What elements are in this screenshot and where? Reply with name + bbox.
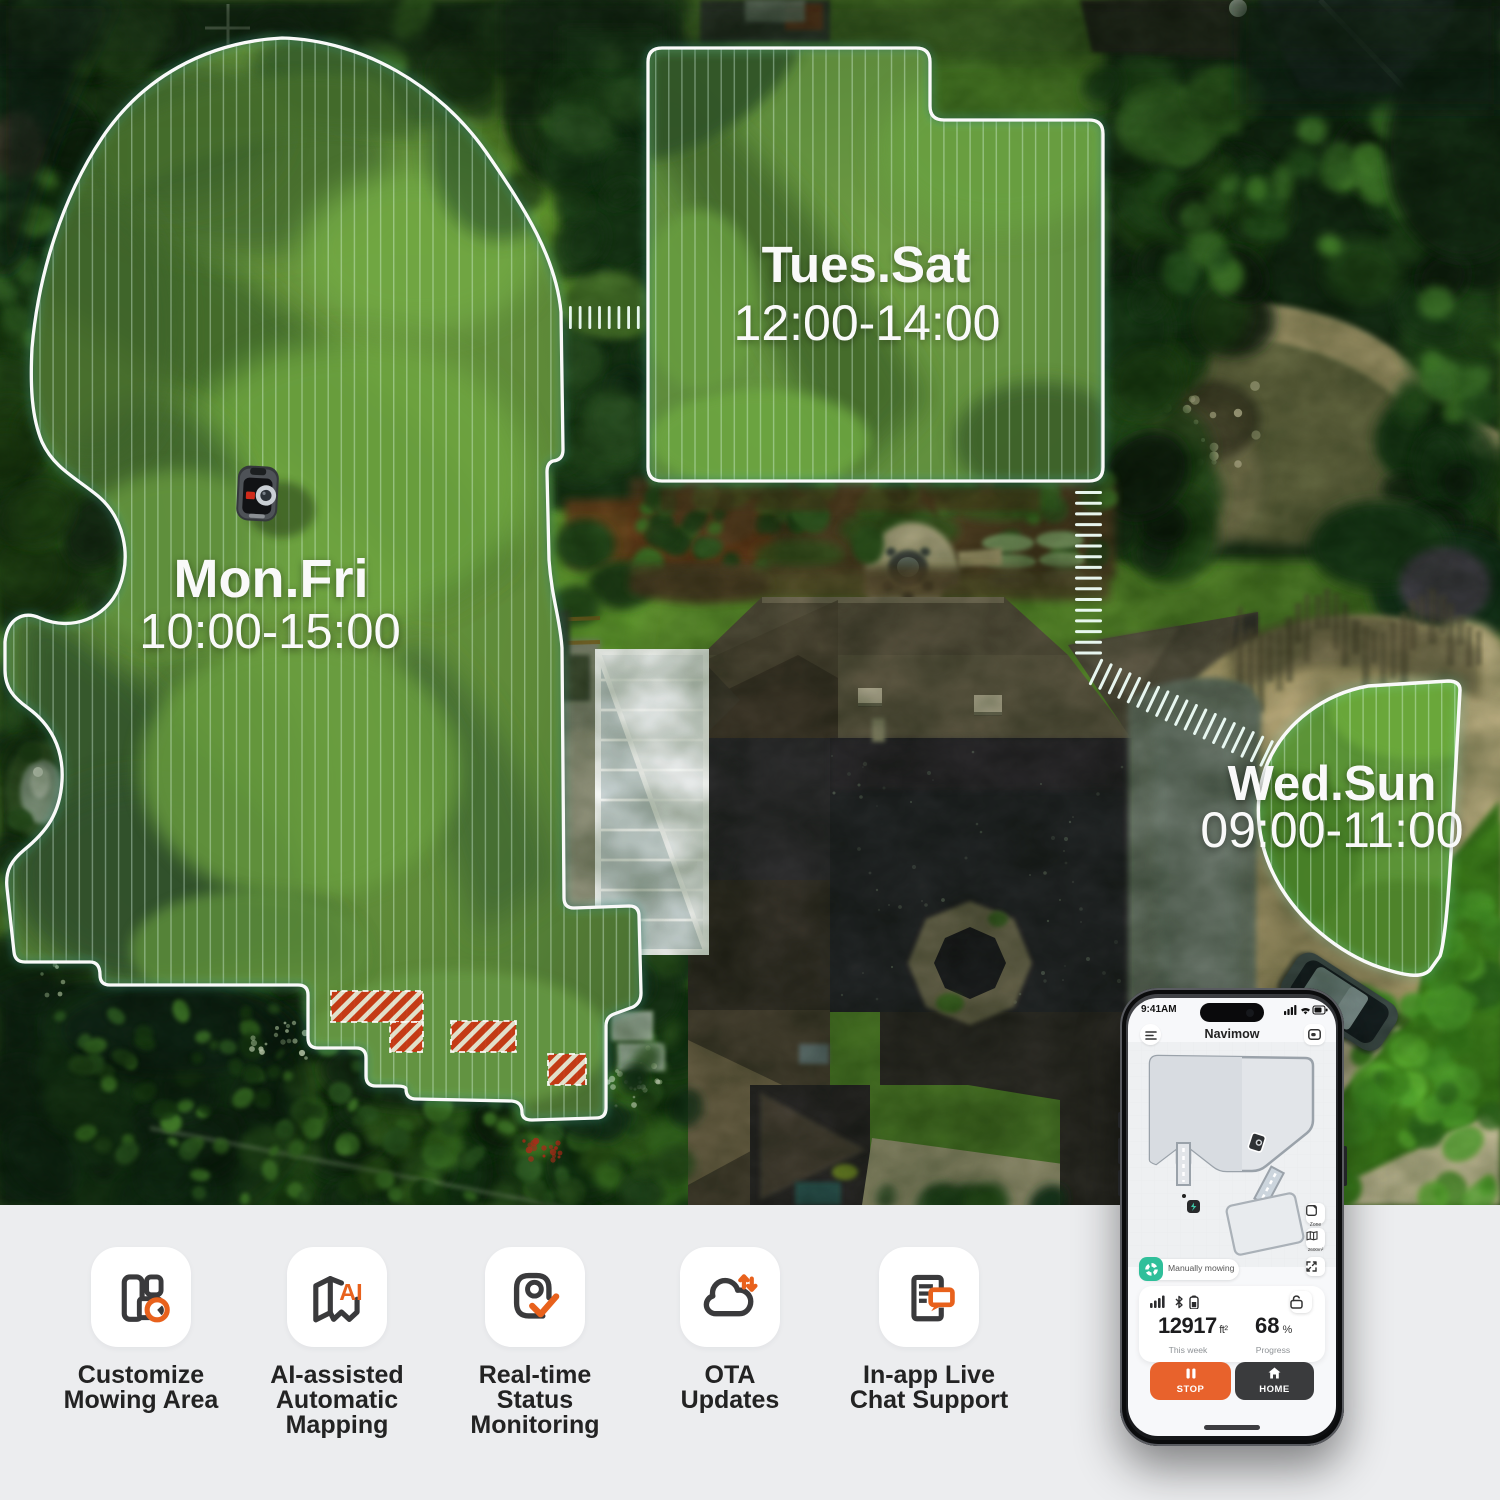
svg-text:12:00-14:00: 12:00-14:00 <box>734 295 1001 351</box>
svg-text:Mon.Fri: Mon.Fri <box>174 549 369 609</box>
svg-text:AI: AI <box>339 1279 362 1305</box>
svg-text:10:00-15:00: 10:00-15:00 <box>139 605 401 659</box>
svg-text:Tues.Sat: Tues.Sat <box>762 236 971 293</box>
svg-text:09:00-11:00: 09:00-11:00 <box>1200 802 1463 858</box>
